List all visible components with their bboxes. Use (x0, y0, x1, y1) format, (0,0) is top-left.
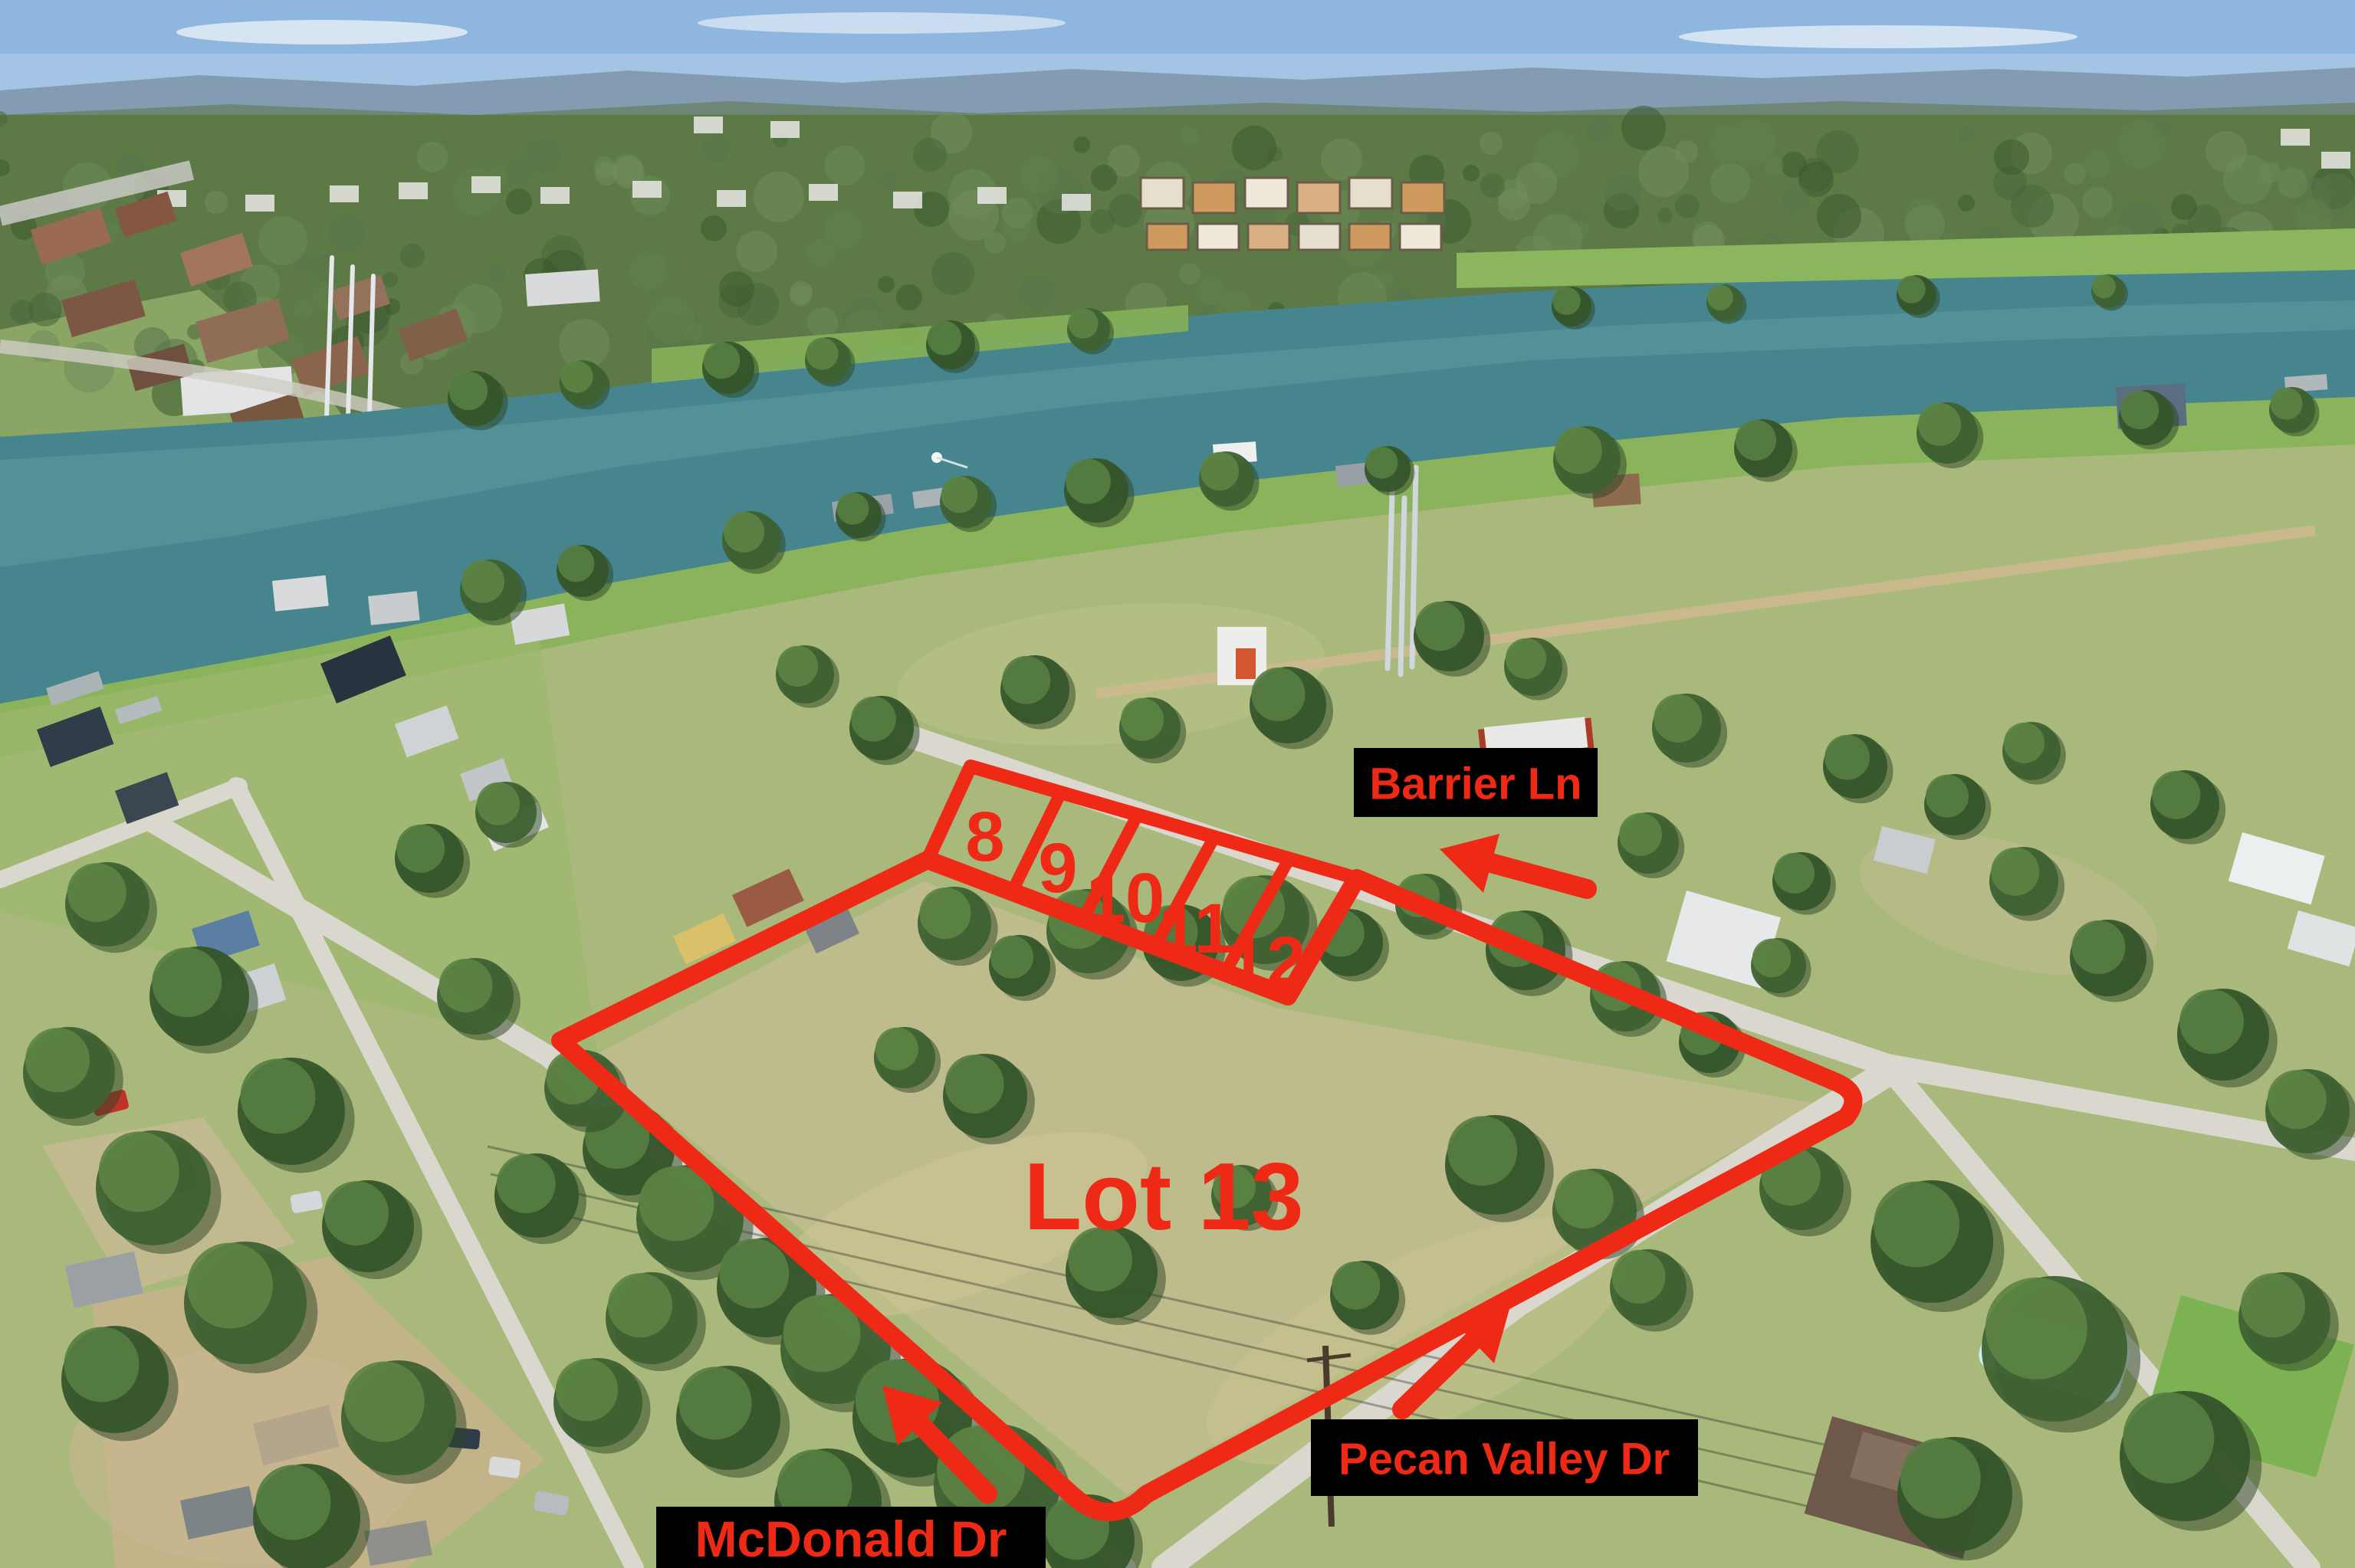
street-label-pecan-valley-dr: Pecan Valley Dr (1311, 1419, 1698, 1496)
lot-number-10: 10 (1086, 859, 1164, 937)
pecan-valley-label-text: Pecan Valley Dr (1338, 1435, 1670, 1484)
barrier-ln-label-text: Barrier Ln (1369, 759, 1581, 809)
street-label-mcdonald-dr: McDonald Dr (656, 1507, 1046, 1568)
photo-background (0, 0, 2355, 1568)
lot-number-8: 8 (965, 798, 1004, 876)
lot-number-12: 12 (1227, 923, 1306, 1001)
cloud (1679, 25, 2077, 48)
lot-number-9: 9 (1038, 829, 1077, 907)
cloud (698, 12, 1066, 34)
mcdonald-label-text: McDonald Dr (695, 1511, 1007, 1567)
lot-13-label: Lot 13 (1023, 1144, 1303, 1250)
cloud (176, 20, 468, 44)
lot-number-11: 11 (1158, 890, 1233, 968)
aerial-photo-svg: 8 9 10 11 12 Lot 13 Barrier Ln Pecan Val… (0, 0, 2355, 1568)
street-label-barrier-ln: Barrier Ln (1354, 748, 1598, 817)
farm-house-door (1236, 648, 1256, 679)
aerial-lot-photo: 8 9 10 11 12 Lot 13 Barrier Ln Pecan Val… (0, 0, 2355, 1568)
